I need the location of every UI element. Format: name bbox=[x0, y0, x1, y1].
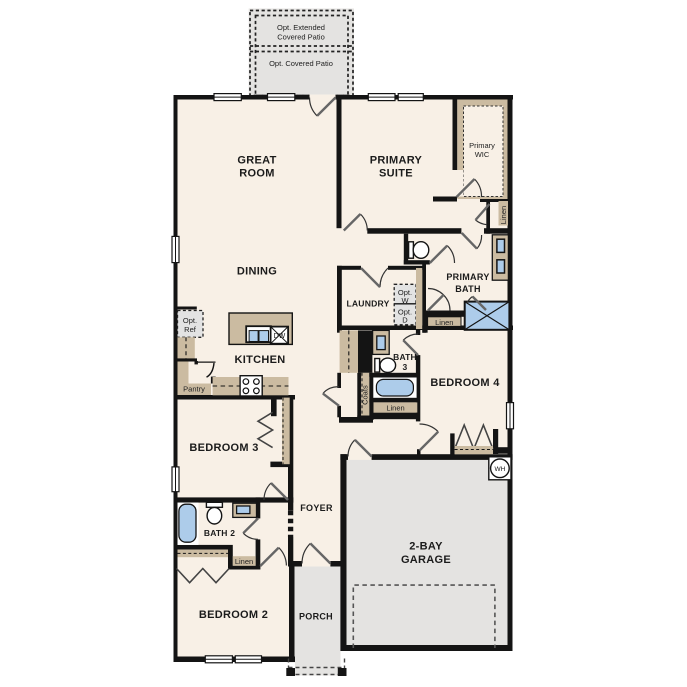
svg-text:Ref: Ref bbox=[184, 325, 197, 334]
svg-text:GREAT: GREAT bbox=[237, 155, 276, 167]
svg-text:Opt. Extended: Opt. Extended bbox=[277, 23, 325, 32]
svg-text:ROOM: ROOM bbox=[239, 168, 274, 180]
svg-text:Opt. Covered Patio: Opt. Covered Patio bbox=[269, 59, 333, 68]
svg-text:WH: WH bbox=[494, 466, 505, 473]
svg-text:Covered Patio: Covered Patio bbox=[277, 33, 325, 42]
svg-text:Pantry: Pantry bbox=[183, 385, 205, 394]
svg-text:Linen: Linen bbox=[499, 206, 508, 224]
svg-text:PRIMARY: PRIMARY bbox=[446, 272, 489, 282]
svg-text:3: 3 bbox=[403, 362, 408, 372]
svg-text:Primary: Primary bbox=[469, 141, 495, 150]
svg-text:DINING: DINING bbox=[237, 266, 277, 278]
svg-text:GARAGE: GARAGE bbox=[401, 554, 451, 566]
svg-text:Linen: Linen bbox=[435, 318, 453, 327]
svg-text:BEDROOM 3: BEDROOM 3 bbox=[189, 442, 258, 454]
svg-text:BEDROOM 4: BEDROOM 4 bbox=[430, 377, 500, 389]
svg-text:SUITE: SUITE bbox=[379, 168, 413, 180]
svg-text:2-BAY: 2-BAY bbox=[409, 541, 443, 553]
svg-text:KITCHEN: KITCHEN bbox=[235, 354, 286, 366]
svg-text:PRIMARY: PRIMARY bbox=[370, 155, 423, 167]
svg-text:D: D bbox=[402, 316, 408, 325]
svg-text:PORCH: PORCH bbox=[299, 612, 333, 622]
svg-text:Coats: Coats bbox=[361, 385, 370, 405]
svg-text:Opt.: Opt. bbox=[183, 316, 197, 325]
svg-text:LAUNDRY: LAUNDRY bbox=[346, 299, 389, 309]
svg-text:BATH: BATH bbox=[455, 284, 481, 294]
svg-text:BEDROOM 2: BEDROOM 2 bbox=[199, 609, 268, 621]
svg-text:Linen: Linen bbox=[386, 404, 404, 413]
svg-text:FOYER: FOYER bbox=[300, 503, 333, 513]
svg-text:BATH 2: BATH 2 bbox=[204, 528, 235, 538]
svg-text:Linen: Linen bbox=[235, 557, 253, 566]
svg-text:BATH: BATH bbox=[393, 352, 417, 362]
svg-text:W: W bbox=[401, 296, 409, 305]
svg-text:WIC: WIC bbox=[475, 150, 490, 159]
svg-text:DW: DW bbox=[274, 333, 286, 340]
